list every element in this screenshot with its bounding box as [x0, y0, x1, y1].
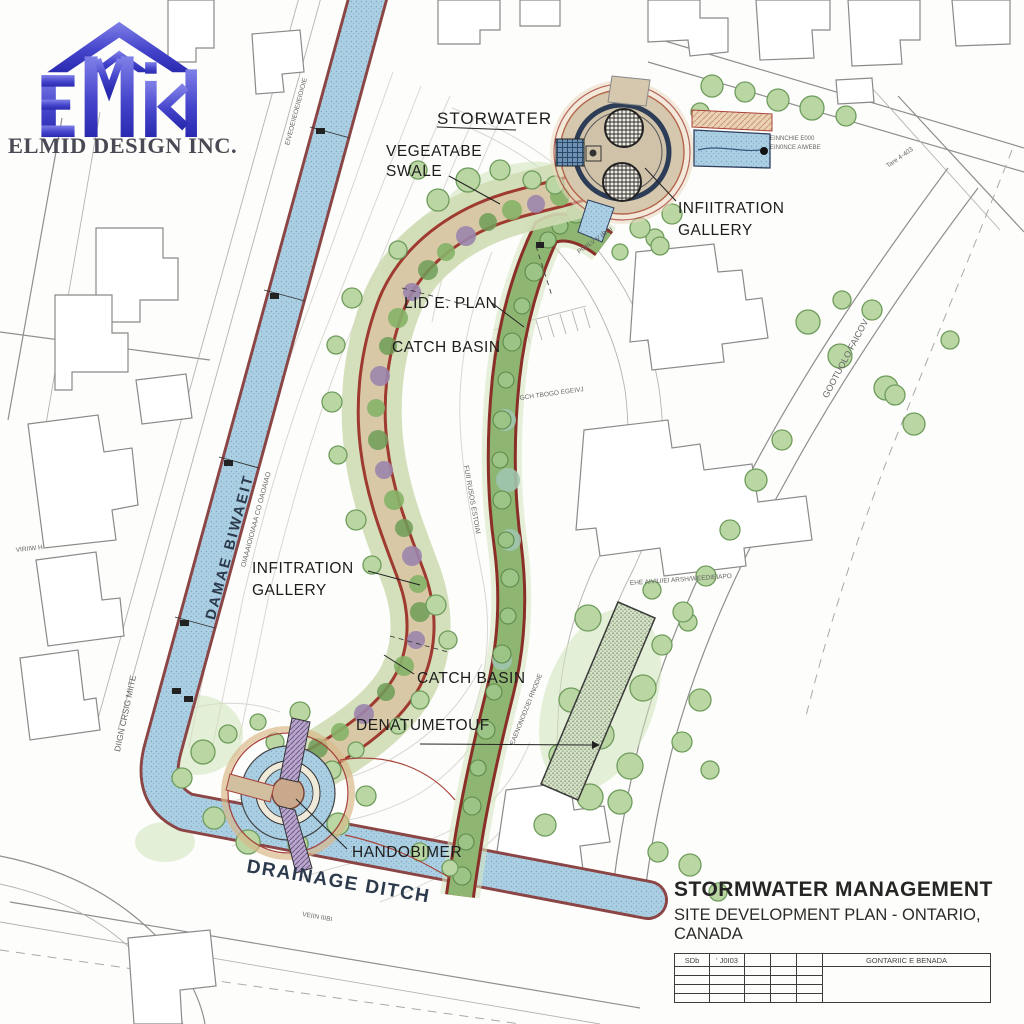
note-tare: Tare 4-403	[885, 146, 915, 170]
label-lid-plan: LID E. PLAN	[404, 295, 497, 312]
infiltration-chamber-south	[603, 163, 641, 201]
note-house-left: VIRIIW H	[15, 544, 43, 554]
tb-header-2: ' J0I03	[710, 954, 745, 967]
tb-cell	[710, 994, 745, 1003]
drawing-subtitle: SITE DEVELOPMENT PLAN - ONTARIO, CANADA	[674, 906, 1018, 944]
site-plan-canvas: STORWATER VEGEATABE SWALE INFIITRATION G…	[0, 0, 1024, 1024]
tb-cell	[675, 994, 710, 1003]
site-plan-drawing: STORWATER VEGEATABE SWALE INFIITRATION G…	[0, 0, 1024, 1024]
tb-header-4	[771, 954, 797, 967]
tb-cell	[675, 967, 710, 976]
label-stormwater: STORWATER	[437, 109, 552, 128]
note-inlet-ne-1: EINNCHIE E000	[770, 136, 815, 142]
tb-cell	[771, 994, 797, 1003]
label-infiltration-gallery-w-2: GALLERY	[252, 582, 327, 599]
note-ditch-small: VEIIN IIIBI	[302, 911, 333, 923]
label-catch-basin-lower: CATCH BASIN	[417, 670, 526, 687]
tb-cell	[797, 994, 823, 1003]
tb-header-5	[797, 954, 823, 967]
drawing-title: STORMWATER MANAGEMENT	[674, 878, 1018, 902]
tb-cell	[797, 967, 823, 976]
tb-notes-area	[823, 967, 991, 1003]
label-hand-chamber: HANDOBIMER	[352, 844, 462, 861]
tb-cell	[710, 967, 745, 976]
tb-header-3	[745, 954, 771, 967]
label-infiltration-gallery-ne-2: GALLERY	[678, 222, 753, 239]
label-denuded: DENATUMETOUF	[356, 717, 490, 734]
tb-cell	[797, 976, 823, 985]
label-vegetated-swale-1: VEGEATABE	[386, 143, 482, 160]
tb-cell	[745, 985, 771, 994]
tb-header-1: SDb	[675, 954, 710, 967]
label-vegetated-swale-2: SWALE	[386, 163, 442, 180]
stormwater-plaza	[550, 76, 772, 242]
tb-cell	[745, 994, 771, 1003]
label-catch-basin-upper: CATCH BASIN	[392, 339, 501, 356]
tb-cell	[771, 985, 797, 994]
tb-cell	[745, 976, 771, 985]
title-block: STORMWATER MANAGEMENT SITE DEVELOPMENT P…	[674, 878, 1018, 1003]
logo-company-name: ELMID DESIGN INC.	[8, 133, 237, 158]
tb-cell	[797, 985, 823, 994]
tb-cell	[745, 967, 771, 976]
tb-cell	[771, 976, 797, 985]
tb-cell	[710, 976, 745, 985]
label-infiltration-gallery-ne-1: INFIITRATION	[678, 200, 784, 217]
tb-cell	[771, 967, 797, 976]
note-strip-station: FUII RUSOS ESTOIAI	[462, 465, 481, 535]
pond-center-island	[272, 777, 304, 809]
note-residences: EHE AIVIUIEI ARSH/WEEDIEIAPO	[630, 573, 732, 587]
note-driveway: GCH TBOGO EGEIVJ	[519, 386, 584, 402]
label-infiltration-gallery-w-1: INFITRATION	[252, 560, 354, 577]
infiltration-chamber-north	[605, 109, 643, 147]
street-label-left: DIIGN CRSIG MIITE	[112, 674, 138, 753]
tb-cell	[675, 985, 710, 994]
tb-cell	[675, 976, 710, 985]
note-inlet-ne-2: EIN0NCE AIWEBE	[770, 145, 821, 151]
inlet-structure	[556, 139, 584, 166]
tb-cell	[710, 985, 745, 994]
tb-header-wide: GONTARIIC E BENADA	[823, 954, 991, 967]
title-block-table: SDb ' J0I03 GONTARIIC E BENADA	[674, 953, 991, 1003]
